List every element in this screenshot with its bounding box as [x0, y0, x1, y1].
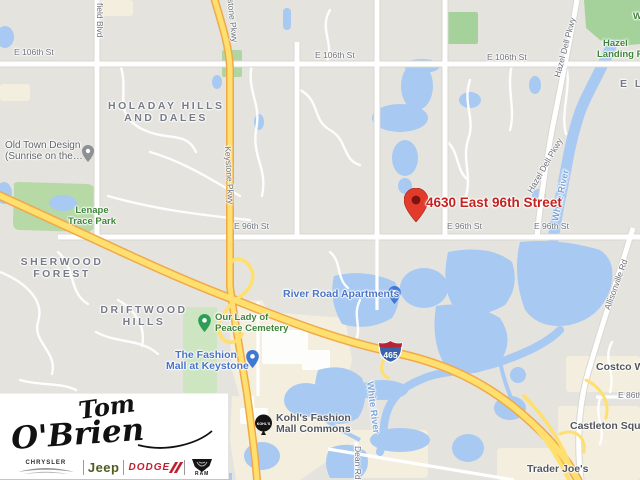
sherwood-line1: SHERWOOD	[20, 256, 104, 268]
street-label-e106th-east: E 106th St	[487, 53, 527, 62]
park-label-hazel-landing-line1[interactable]: Hazel	[603, 39, 628, 49]
dealer-logo-box: Tom O'Brien CHRYSLER Jeep DODGE	[0, 393, 229, 479]
dodge-wordmark: DODGE	[128, 462, 170, 473]
kohls-line2: Mall Commons	[276, 424, 351, 435]
holaday-line2: AND DALES	[108, 112, 224, 124]
kohls-icon-label: KOHL'S	[257, 422, 271, 426]
destination-address-label: 4630 East 96th Street	[426, 196, 562, 211]
cemetery-line2: Peace Cemetery	[215, 323, 288, 334]
dodge-logo: DODGE	[128, 462, 180, 473]
street-label-e86th: E 86th St	[618, 391, 640, 400]
destination-marker-icon[interactable]	[404, 188, 428, 222]
signature-swash	[138, 431, 212, 448]
poi-label-castleton-square[interactable]: Castleton Square	[570, 421, 640, 433]
park-label-hazel-landing-line2[interactable]: Landing Park	[597, 50, 640, 60]
old-town-design-pin-icon[interactable]	[82, 145, 94, 162]
poi-label-kohls[interactable]: Kohl's Fashion Mall Commons	[276, 413, 351, 435]
map-canvas[interactable]: 465 KOHL'S E 106th St E 106th St E 106th…	[0, 0, 640, 480]
chrysler-wings-icon	[16, 466, 76, 475]
poi-label-trader-joes[interactable]: Trader Joe's	[527, 464, 588, 476]
driftwood-line1: DRIFTWOOD	[98, 304, 190, 316]
dealer-name-line2: O'Brien	[10, 412, 145, 455]
poi-label-cemetery[interactable]: Our Lady of Peace Cemetery	[215, 312, 288, 334]
street-label-e96th-east: E 96th St	[534, 222, 569, 231]
neighborhood-label-sherwood: SHERWOOD FOREST	[20, 256, 104, 280]
old-town-line2: (Sunrise on the…	[5, 151, 83, 162]
park-label-lenape[interactable]: Lenape Trace Park	[66, 205, 118, 227]
brand-logo-row: CHRYSLER Jeep DODGE RAM	[3, 456, 225, 478]
brand-divider	[123, 460, 124, 475]
street-label-westfield-blvd: field Blvd	[95, 3, 104, 38]
sherwood-line2: FOREST	[20, 268, 104, 280]
old-town-line1: Old Town Design	[5, 140, 83, 151]
neighborhood-label-el-partial: E L	[620, 79, 640, 91]
ram-head-icon	[191, 458, 213, 472]
street-label-e106th-west: E 106th St	[14, 48, 54, 57]
kohls-store-icon[interactable]: KOHL'S	[254, 414, 273, 438]
street-label-e96th-mid: E 96th St	[447, 222, 482, 231]
holaday-line1: HOLADAY HILLS	[108, 100, 224, 112]
street-label-e106th-mid: E 106th St	[315, 51, 355, 60]
street-label-dean-rd: Dean Rd	[353, 446, 362, 480]
street-label-e96th-west: E 96th St	[234, 222, 269, 231]
poi-label-costco[interactable]: Costco Wholesale	[596, 362, 640, 374]
brand-divider	[83, 460, 84, 475]
ram-logo: RAM	[189, 458, 215, 477]
street-label-keystone-mid: Keystone Pkwy	[223, 146, 235, 205]
park-label-w-partial: W	[633, 12, 640, 22]
fashion-mall-line2: Mall at Keystone	[166, 361, 246, 372]
neighborhood-label-holaday: HOLADAY HILLS AND DALES	[108, 100, 224, 124]
poi-label-fashion-mall[interactable]: The Fashion Mall at Keystone	[166, 350, 246, 372]
lenape-line2: Trace Park	[66, 216, 118, 227]
chrysler-logo: CHRYSLER	[13, 460, 79, 475]
lenape-line1: Lenape	[66, 205, 118, 216]
cemetery-line1: Our Lady of	[215, 312, 288, 323]
driftwood-line2: HILLS	[98, 316, 190, 328]
shield-number: 465	[383, 350, 397, 360]
brand-divider	[184, 460, 185, 475]
jeep-wordmark: Jeep	[88, 460, 120, 475]
ram-wordmark: RAM	[195, 472, 209, 477]
poi-label-old-town-design[interactable]: Old Town Design (Sunrise on the…	[5, 140, 83, 162]
cemetery-pin-icon[interactable]	[198, 314, 211, 332]
neighborhood-label-driftwood: DRIFTWOOD HILLS	[98, 304, 190, 328]
dealer-script-logo: Tom O'Brien	[0, 395, 228, 455]
poi-label-river-road-apartments[interactable]: River Road Apartments	[283, 289, 399, 301]
